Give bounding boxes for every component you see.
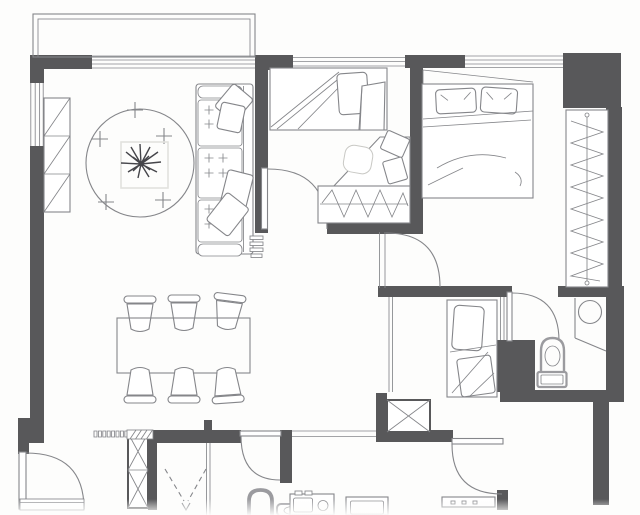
bathroom-door-leaf bbox=[240, 431, 281, 436]
bookshelf bbox=[44, 98, 70, 212]
study-door-leaf bbox=[262, 168, 268, 229]
living-room bbox=[44, 83, 263, 257]
partition-line bbox=[501, 297, 505, 340]
study-bedroom bbox=[270, 68, 410, 223]
dining-chair bbox=[168, 295, 200, 331]
toilet-tank bbox=[538, 372, 567, 387]
shower-symbol bbox=[165, 469, 206, 510]
study-wardrobe bbox=[318, 186, 410, 223]
bed-pillow bbox=[435, 88, 476, 114]
service-shaft-east bbox=[387, 400, 430, 432]
sofa bbox=[196, 83, 254, 256]
entrance-door bbox=[19, 452, 84, 510]
floor-plan-drawing bbox=[0, 0, 640, 515]
master-wardrobe bbox=[566, 110, 608, 287]
desk-chair bbox=[342, 144, 374, 175]
master-door bbox=[380, 232, 441, 288]
dining-chair bbox=[210, 366, 244, 404]
floor-plan-canvas bbox=[0, 0, 640, 515]
folded-blanket bbox=[359, 82, 385, 130]
dining-area bbox=[117, 292, 250, 404]
kitchen-door-leaf bbox=[452, 439, 503, 445]
kitchen bbox=[290, 491, 495, 515]
bathroom-door-arc bbox=[241, 436, 280, 480]
ensuite-door-arc bbox=[512, 293, 559, 341]
toilet-arch bbox=[249, 490, 272, 515]
bed-pillow bbox=[452, 305, 485, 351]
kitchen-sink bbox=[346, 497, 388, 515]
round-basin bbox=[579, 301, 602, 324]
glass-partition bbox=[389, 297, 393, 392]
counter-strip bbox=[442, 497, 495, 507]
service-shaft-west bbox=[128, 433, 148, 508]
dining-chair bbox=[210, 292, 246, 331]
toilet bbox=[538, 338, 567, 387]
master-door-leaf bbox=[380, 232, 386, 288]
bathroom-door bbox=[240, 431, 281, 480]
kitchen-door bbox=[452, 439, 503, 495]
toilet-bowl-inner bbox=[545, 346, 560, 366]
living-window bbox=[92, 56, 255, 68]
study-window bbox=[293, 58, 405, 67]
vent-grille bbox=[94, 431, 128, 437]
balcony-railing-inner bbox=[38, 19, 250, 57]
study-door bbox=[262, 168, 328, 229]
balcony-railing-outer bbox=[33, 14, 255, 57]
living-side-window bbox=[31, 83, 43, 146]
kitchen-door-arc bbox=[452, 444, 502, 494]
kitchen-pass-through bbox=[292, 431, 376, 437]
master-window bbox=[465, 56, 563, 68]
dining-chair bbox=[124, 296, 156, 332]
cooktop-unit bbox=[290, 491, 334, 515]
ensuite-door-leaf bbox=[507, 292, 512, 341]
small-bedroom bbox=[389, 297, 504, 397]
entrance-threshold bbox=[20, 499, 84, 510]
potted-plant bbox=[121, 144, 161, 178]
ensuite-bathroom bbox=[538, 298, 607, 387]
master-door-arc bbox=[386, 233, 440, 287]
shower-partition bbox=[207, 443, 211, 515]
throw-pillow bbox=[217, 102, 246, 133]
ensuite-door bbox=[507, 292, 559, 341]
bed-pillow bbox=[480, 87, 518, 114]
sofa-armrest-bottom bbox=[198, 244, 242, 256]
toilet-bowl bbox=[541, 338, 564, 372]
balcony bbox=[33, 14, 255, 57]
headboard-panel bbox=[423, 70, 533, 84]
hatched-patch bbox=[127, 430, 153, 439]
